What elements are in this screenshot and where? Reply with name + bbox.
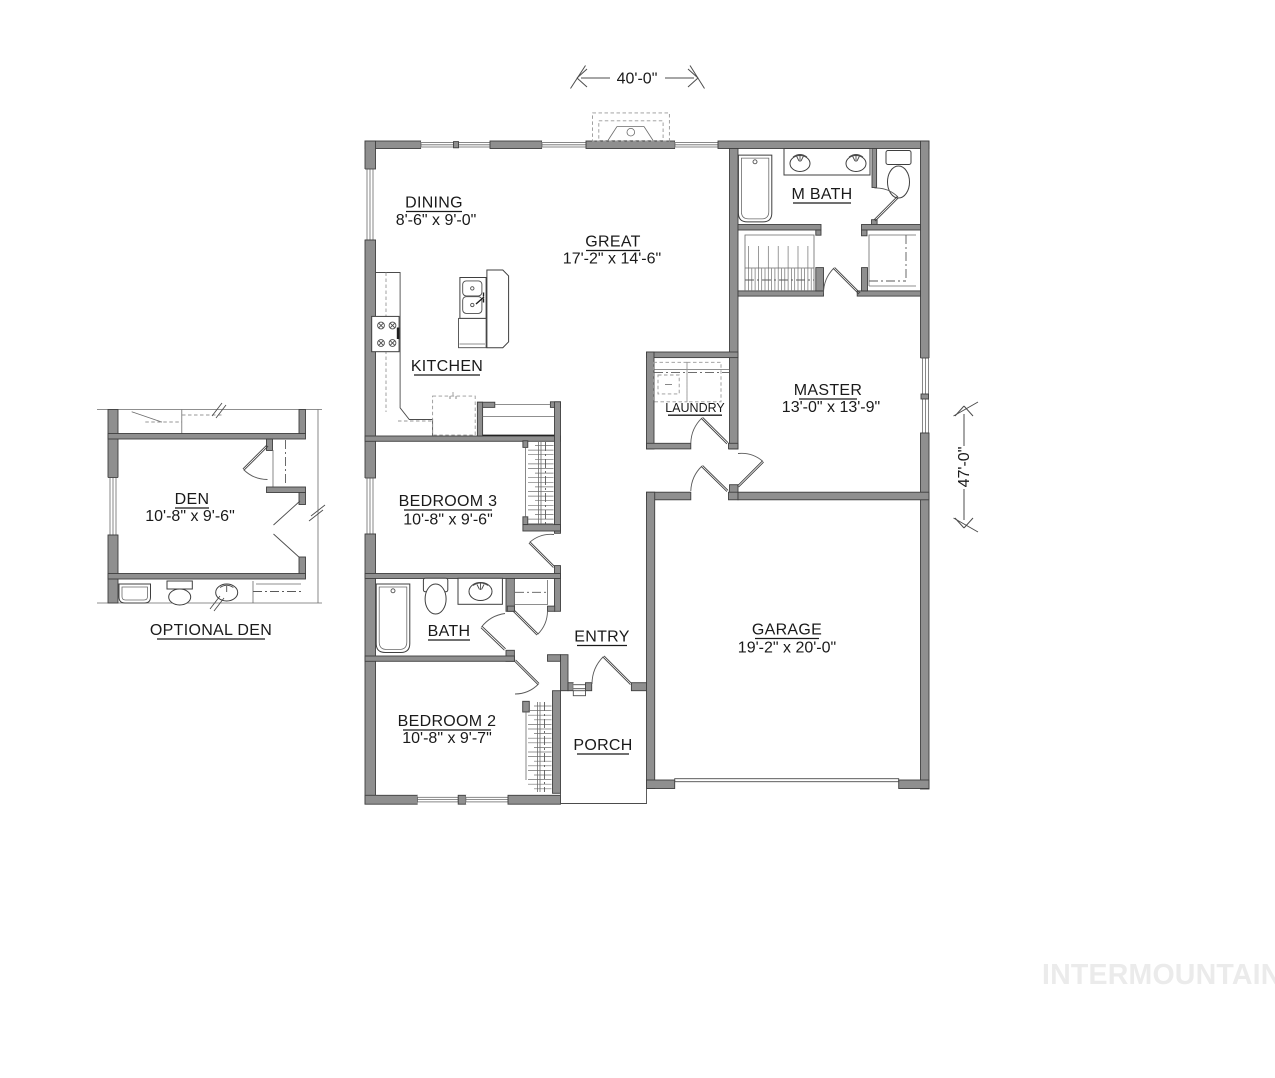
svg-text:GARAGE: GARAGE [752,622,822,639]
svg-text:17'-2" x 14'-6": 17'-2" x 14'-6" [563,251,661,268]
svg-text:BATH: BATH [428,623,471,640]
svg-text:ENTRY: ENTRY [574,629,629,646]
svg-text:19'-2" x 20'-0": 19'-2" x 20'-0" [738,640,836,657]
svg-text:47'-0": 47'-0" [956,447,973,488]
svg-text:DEN: DEN [175,491,210,508]
svg-text:BEDROOM 3: BEDROOM 3 [399,493,498,510]
svg-text:40'-0": 40'-0" [617,71,658,88]
svg-text:M BATH: M BATH [791,186,852,203]
svg-text:10'-8" x 9'-6": 10'-8" x 9'-6" [145,508,235,525]
svg-text:KITCHEN: KITCHEN [411,358,483,375]
svg-text:10'-8" x 9'-6": 10'-8" x 9'-6" [403,512,493,529]
svg-text:OPTIONAL DEN: OPTIONAL DEN [150,622,272,639]
svg-text:10'-8" x 9'-7": 10'-8" x 9'-7" [402,730,492,747]
svg-text:8'-6" x 9'-0": 8'-6" x 9'-0" [396,212,477,229]
svg-text:BEDROOM 2: BEDROOM 2 [398,713,497,730]
svg-text:GREAT: GREAT [585,234,640,251]
svg-text:INTERMOUNTAIN: INTERMOUNTAIN [1042,959,1275,991]
svg-text:PORCH: PORCH [573,737,632,754]
svg-text:MASTER: MASTER [794,382,862,399]
svg-text:DINING: DINING [405,195,463,212]
svg-text:13'-0" x 13'-9": 13'-0" x 13'-9" [782,399,880,416]
svg-text:LAUNDRY: LAUNDRY [665,401,725,415]
